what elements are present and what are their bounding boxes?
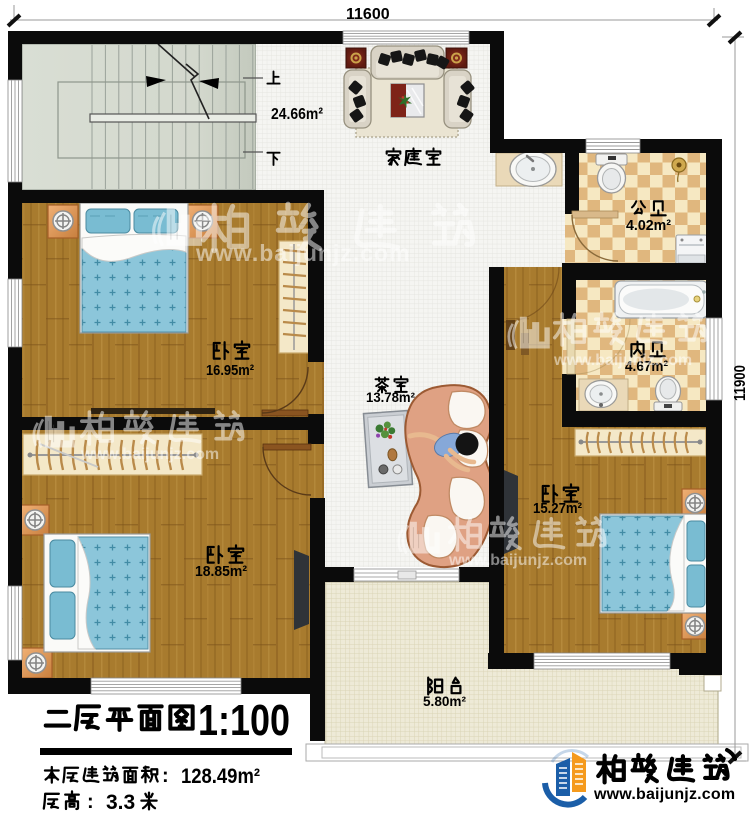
svg-text:5.80m²: 5.80m² (423, 693, 466, 709)
svg-text::: : (162, 765, 169, 787)
svg-text::: : (87, 791, 94, 813)
svg-text:3.3: 3.3 (106, 791, 135, 814)
svg-text:11600: 11600 (346, 6, 390, 23)
svg-text:16.95m²: 16.95m² (206, 362, 254, 379)
svg-text:www.baijunjz.com: www.baijunjz.com (553, 352, 692, 369)
svg-text:11900: 11900 (732, 365, 749, 401)
svg-text:www.baijunjz.com: www.baijunjz.com (80, 446, 219, 463)
svg-text:1:100: 1:100 (198, 696, 290, 745)
svg-text:13.78m²: 13.78m² (366, 389, 415, 405)
svg-text:24.66m²: 24.66m² (271, 106, 323, 123)
svg-text:www.baijunjz.com: www.baijunjz.com (195, 240, 411, 266)
svg-text:15.27m²: 15.27m² (533, 500, 582, 517)
svg-text:128.49m²: 128.49m² (181, 765, 260, 788)
svg-text:18.85m²: 18.85m² (195, 563, 247, 580)
svg-text:www.baijunjz.com: www.baijunjz.com (448, 552, 587, 569)
svg-text:4.02m²: 4.02m² (626, 217, 671, 234)
svg-text:www.baijunjz.com: www.baijunjz.com (593, 786, 735, 803)
